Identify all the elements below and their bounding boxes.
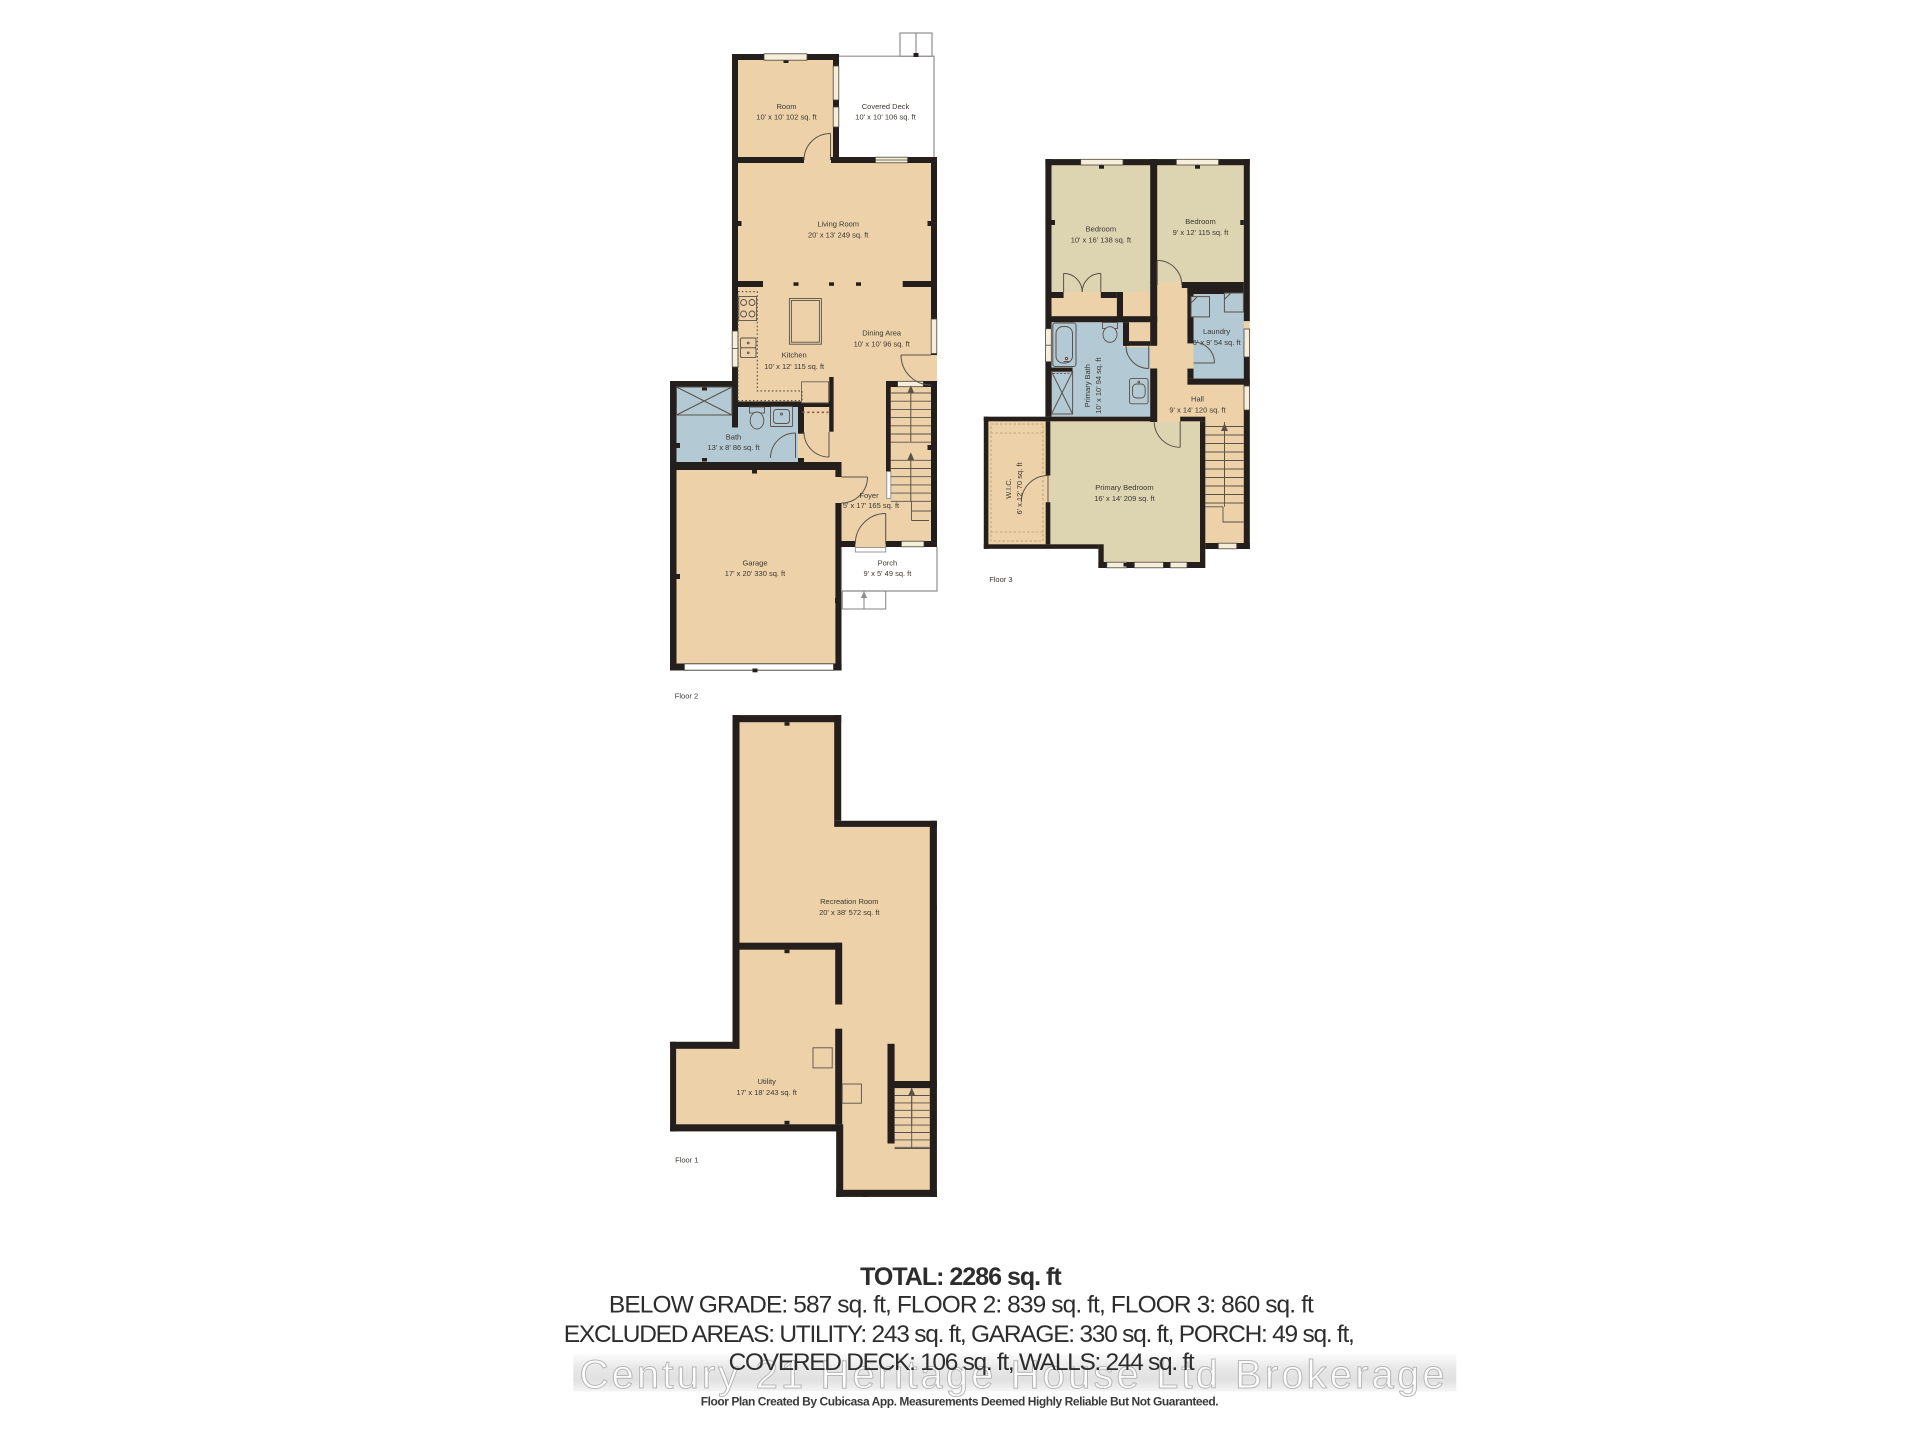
svg-text:10' x 10' 102 sq. ft: 10' x 10' 102 sq. ft <box>756 113 817 122</box>
svg-text:TOTAL: 2286 sq. ft: TOTAL: 2286 sq. ft <box>860 1263 1062 1291</box>
svg-text:Kitchen: Kitchen <box>782 351 807 360</box>
svg-text:Porch: Porch <box>878 559 898 568</box>
svg-text:Primary Bedroom: Primary Bedroom <box>1095 483 1153 492</box>
svg-text:16' x 14' 209 sq. ft: 16' x 14' 209 sq. ft <box>1094 494 1155 503</box>
svg-text:5' x 17' 165 sq. ft: 5' x 17' 165 sq. ft <box>843 501 900 510</box>
svg-text:10' x 12' 115 sq. ft: 10' x 12' 115 sq. ft <box>764 362 825 371</box>
svg-text:6' x 9' 54 sq. ft: 6' x 9' 54 sq. ft <box>1193 338 1242 347</box>
svg-text:6' x 12' 70 sq. ft: 6' x 12' 70 sq. ft <box>1015 462 1024 515</box>
svg-text:20' x 38' 572 sq. ft: 20' x 38' 572 sq. ft <box>819 908 880 917</box>
svg-text:13' x 8' 86 sq. ft: 13' x 8' 86 sq. ft <box>707 443 760 452</box>
svg-text:Utility: Utility <box>758 1077 777 1086</box>
svg-text:Recreation Room: Recreation Room <box>820 897 878 906</box>
svg-text:10' x 10' 106 sq. ft: 10' x 10' 106 sq. ft <box>855 113 916 122</box>
svg-text:Garage: Garage <box>742 559 767 568</box>
svg-text:BELOW GRADE: 587 sq. ft, FLOOR: BELOW GRADE: 587 sq. ft, FLOOR 2: 839 sq… <box>609 1292 1314 1319</box>
svg-text:10' x 10' 96 sq. ft: 10' x 10' 96 sq. ft <box>854 339 911 348</box>
svg-text:20' x 13' 249 sq. ft: 20' x 13' 249 sq. ft <box>808 230 869 239</box>
svg-text:Floor 3: Floor 3 <box>989 575 1012 584</box>
svg-text:Laundry: Laundry <box>1203 327 1230 336</box>
svg-text:9' x 14' 120 sq. ft: 9' x 14' 120 sq. ft <box>1169 406 1226 415</box>
svg-text:Bath: Bath <box>726 432 741 441</box>
svg-text:Floor Plan Created By Cubicasa: Floor Plan Created By Cubicasa App. Meas… <box>701 1395 1219 1409</box>
svg-text:W.I.C.: W.I.C. <box>1004 478 1013 498</box>
svg-text:17' x 18' 243 sq. ft: 17' x 18' 243 sq. ft <box>736 1088 797 1097</box>
svg-text:COVERED DECK: 106 sq. ft, WALL: COVERED DECK: 106 sq. ft, WALLS: 244 sq.… <box>729 1349 1195 1376</box>
svg-text:Bedroom: Bedroom <box>1086 224 1116 233</box>
svg-text:17' x 20' 330 sq. ft: 17' x 20' 330 sq. ft <box>725 569 786 578</box>
svg-text:Bedroom: Bedroom <box>1185 217 1215 226</box>
svg-text:9' x 12' 115 sq. ft: 9' x 12' 115 sq. ft <box>1173 228 1230 237</box>
svg-text:Primary Bath: Primary Bath <box>1083 364 1092 407</box>
svg-text:Covered Deck: Covered Deck <box>862 102 910 111</box>
svg-text:Foyer: Foyer <box>859 491 879 500</box>
svg-text:Hall: Hall <box>1191 395 1204 404</box>
svg-text:9' x 5' 49 sq. ft: 9' x 5' 49 sq. ft <box>863 569 912 578</box>
svg-text:Floor 1: Floor 1 <box>675 1156 698 1165</box>
svg-text:EXCLUDED AREAS: UTILITY: 243 s: EXCLUDED AREAS: UTILITY: 243 sq. ft, GAR… <box>564 1321 1354 1348</box>
svg-text:Floor 2: Floor 2 <box>675 692 698 701</box>
svg-text:Living Room: Living Room <box>817 219 859 228</box>
svg-text:10' x 16' 138 sq. ft: 10' x 16' 138 sq. ft <box>1071 236 1132 245</box>
svg-text:Dining Area: Dining Area <box>862 328 902 337</box>
svg-text:10' x 10' 94 sq. ft: 10' x 10' 94 sq. ft <box>1094 357 1103 414</box>
svg-text:Room: Room <box>776 102 796 111</box>
